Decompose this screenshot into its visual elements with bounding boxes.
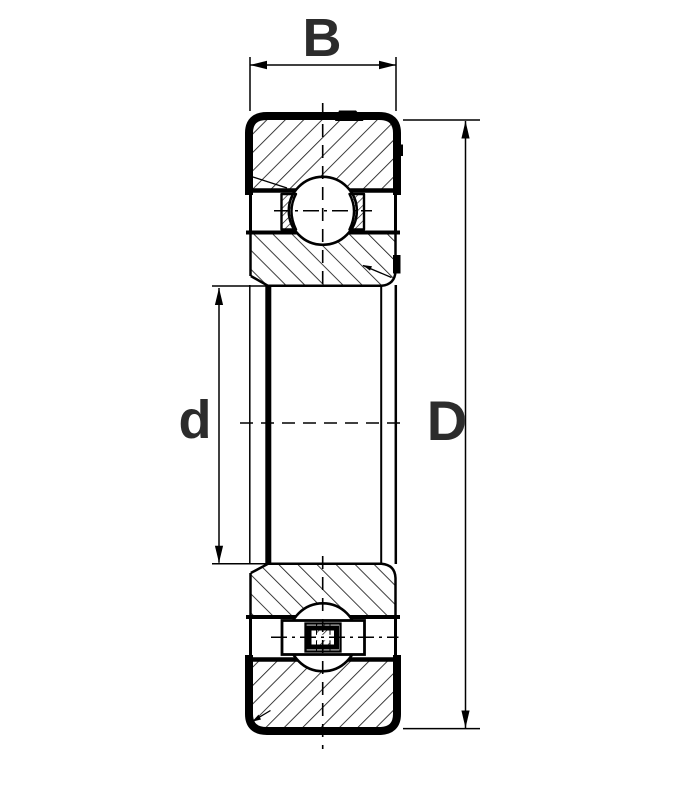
label-outer-diameter-D: D	[427, 389, 467, 452]
bearing-cross-section-svg: B d D	[0, 0, 678, 792]
dimension-B: B	[250, 8, 396, 111]
groove-tick-mid	[393, 255, 401, 274]
bearing-diagram: B d D	[0, 0, 678, 792]
groove-tick-top	[397, 145, 404, 157]
arrow-up	[461, 121, 469, 139]
arrow-down	[461, 711, 469, 729]
arrow-left	[250, 61, 267, 69]
label-bore-d: d	[179, 390, 212, 450]
label-width-B: B	[303, 8, 342, 68]
bore	[250, 285, 396, 564]
arrow-up	[215, 288, 223, 305]
arrow-right	[379, 61, 396, 69]
dimension-d: d	[179, 286, 274, 564]
arrow-down	[215, 546, 223, 563]
dimension-D: D	[403, 120, 480, 729]
centerlines	[240, 103, 404, 749]
